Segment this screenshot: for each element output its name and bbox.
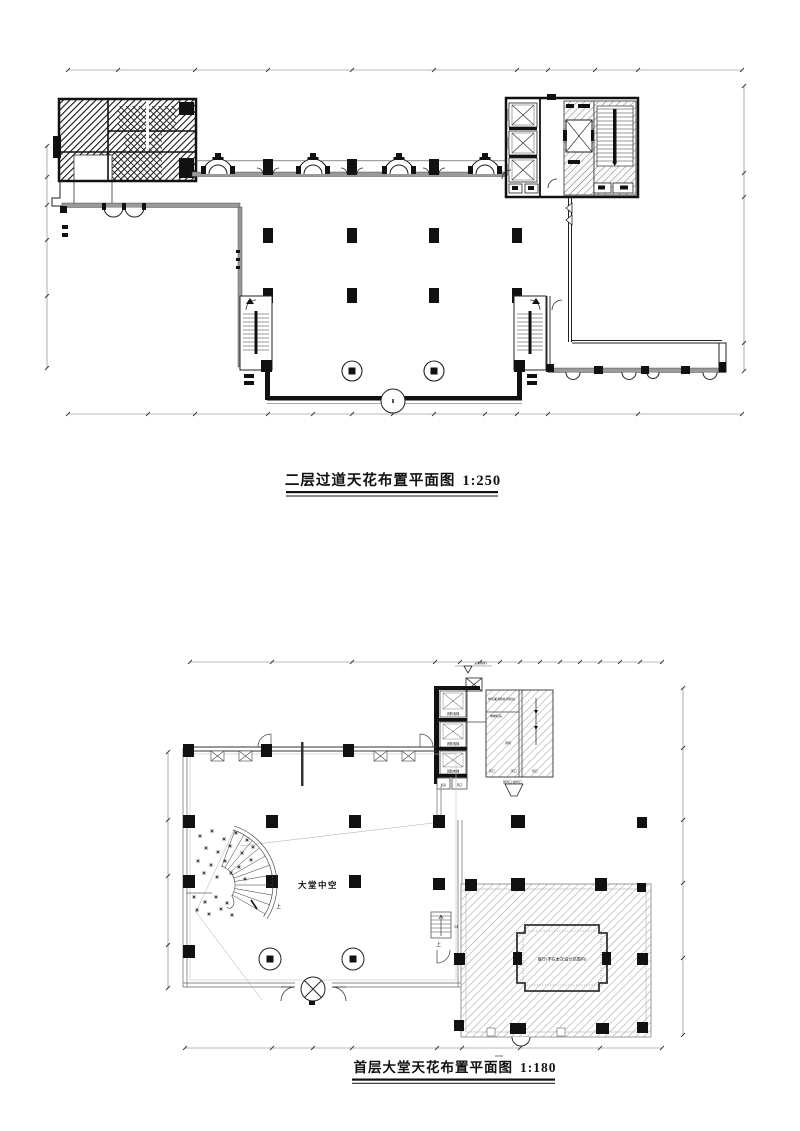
arched-opening (468, 153, 502, 174)
elevator-label: 消防电梯 (447, 711, 461, 716)
lobby-walls (183, 734, 462, 1000)
title-underline-thick (352, 1079, 555, 1081)
elevator-cell (507, 103, 537, 127)
swing-door-left (281, 987, 295, 1001)
lower-plan: ±0.000 消防电梯 消防电梯 消防电梯 (166, 660, 685, 1056)
elevator-stair-core-upper (502, 94, 638, 197)
east-stair: 14 上 (431, 912, 458, 963)
fan-label: 风机 (505, 740, 511, 745)
stairwell-right (514, 296, 546, 385)
air-note-label: 回风口/送风口 (503, 779, 522, 784)
machine-room: 排风兼消防补风机房 电梯机房 风机 风口 风口 风口 回风口/送风口 (467, 690, 553, 784)
up-label-east: 上 (436, 941, 441, 948)
machine-room-label: 排风兼消防补风机房 (488, 696, 515, 701)
title-underline-thick (286, 491, 498, 493)
elevation-marker: ±0.000 (455, 661, 492, 674)
elevator-cell (507, 158, 537, 182)
small-room-label: 机房 (441, 783, 447, 787)
hall-columns-grid (263, 228, 522, 303)
grid-bubble-circle (381, 389, 405, 413)
arched-opening (382, 153, 416, 174)
vent-port-label: 风口 (489, 769, 495, 773)
elevator-cell (507, 131, 537, 155)
elevator-core-lower: 消防电梯 消防电梯 消防电梯 机房 风口 (434, 686, 480, 789)
planting-symbols (192, 829, 255, 917)
arched-opening (296, 153, 330, 174)
vent-port-label: 风口 (511, 769, 517, 773)
wall-vent-x-box (211, 751, 415, 761)
east-corridor (546, 197, 726, 380)
door-arc (512, 1037, 530, 1046)
small-room-label: 风口 (457, 783, 463, 787)
ceiling-lines (196, 823, 433, 1000)
service-block-hatched (53, 99, 196, 205)
door-arc (420, 734, 433, 747)
entrance-revolving-door (281, 977, 346, 1005)
title-underline-thin (352, 1083, 555, 1084)
elevator-label: 消防电梯 (447, 741, 461, 746)
core-staircase (594, 101, 636, 195)
arch-colonnade (192, 153, 505, 177)
circled-columns-upper (342, 361, 444, 381)
vent-port-label: 风口 (532, 769, 538, 773)
arched-opening (201, 153, 235, 174)
restaurant-label: 餐厅(不在本次设计范围内) (538, 956, 587, 963)
lower-plan-title-block: 首层大堂天花布置平面图1:180 (352, 1059, 557, 1084)
stairwell-left (240, 296, 272, 385)
elevator-bank (507, 98, 540, 197)
elevation-label: ±0.000 (474, 661, 487, 666)
stair-count-label: 14 (454, 924, 458, 929)
elevator-cell: 消防电梯 (440, 722, 466, 747)
elevator-machine-label: 电梯机房 (490, 713, 502, 718)
circled-columns-lower (259, 948, 364, 970)
floor-plan-drawing: 二层过道天花布置平面图1:250 ±0.000 消防电梯 (0, 0, 800, 1131)
door-arc (437, 950, 450, 963)
lower-plan-title: 首层大堂天花布置平面图1:180 (354, 1059, 557, 1075)
elevator-cell: 消防电梯 (440, 691, 466, 717)
up-label-spiral: 上 (276, 903, 281, 910)
drawing-sheet: 二层过道天花布置平面图1:250 ±0.000 消防电梯 (0, 0, 800, 1131)
elevator-label: 消防电梯 (447, 769, 461, 774)
upper-plan-title: 二层过道天花布置平面图1:250 (285, 471, 501, 489)
atrium-label: 大堂中空 (298, 880, 338, 890)
upper-plan (45, 68, 746, 416)
title-underline-thin (286, 496, 498, 497)
swing-door-right (332, 987, 346, 1001)
elevator-cell: 消防电梯 (440, 751, 466, 774)
restaurant-area: 餐厅(不在本次设计范围内) (454, 878, 651, 1046)
upper-plan-title-block: 二层过道天花布置平面图1:250 (285, 471, 501, 497)
